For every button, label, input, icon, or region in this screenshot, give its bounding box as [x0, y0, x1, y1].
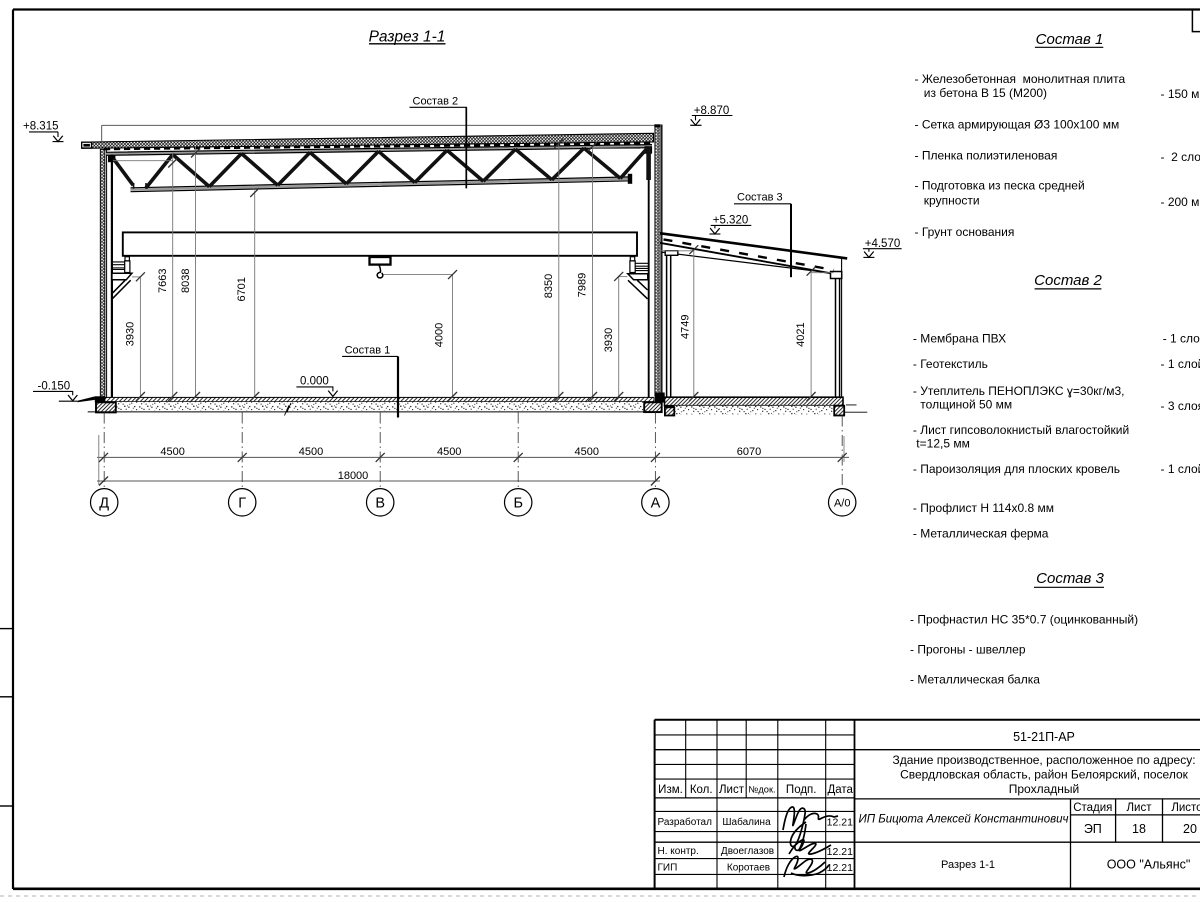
svg-text:4749: 4749 — [679, 314, 691, 338]
svg-text:Н. контр.: Н. контр. — [658, 846, 699, 857]
svg-text:Лист: Лист — [1127, 802, 1153, 814]
svg-text:4500: 4500 — [299, 446, 323, 458]
svg-text:- 1 слой: - 1 слой — [1161, 462, 1200, 476]
svg-text:7663: 7663 — [157, 268, 169, 292]
svg-text:4500: 4500 — [575, 446, 599, 458]
svg-text:- Профнастил НС 35*0.7 (оцинко: - Профнастил НС 35*0.7 (оцинкованный) — [910, 613, 1138, 627]
svg-text:- Профлист Н 114х0.8 мм: - Профлист Н 114х0.8 мм — [913, 501, 1054, 515]
svg-text:4500: 4500 — [160, 446, 184, 458]
svg-text:Дата: Дата — [827, 784, 853, 796]
svg-text:+5.320: +5.320 — [713, 214, 749, 226]
svg-text:Прохладный: Прохладный — [1009, 782, 1079, 796]
svg-text:- 1 слой: - 1 слой — [1161, 357, 1200, 371]
svg-text:А: А — [651, 496, 661, 512]
svg-text:51-21П-АР: 51-21П-АР — [1013, 730, 1075, 744]
svg-text:Состав 3: Состав 3 — [1036, 570, 1104, 587]
svg-text:4500: 4500 — [437, 446, 461, 458]
svg-text:8038: 8038 — [180, 268, 192, 292]
svg-text:- 1 слой: - 1 слой — [1163, 332, 1200, 346]
svg-text:Лист: Лист — [719, 784, 745, 796]
svg-text:Стадия: Стадия — [1073, 802, 1112, 814]
svg-text:Разрез 1-1: Разрез 1-1 — [369, 28, 446, 45]
svg-text:- 3 слоя: - 3 слоя — [1161, 399, 1200, 413]
svg-text:Двоеглазов: Двоеглазов — [721, 846, 774, 857]
svg-text:Разрез 1-1: Разрез 1-1 — [941, 859, 995, 871]
svg-text:3930: 3930 — [124, 322, 136, 346]
svg-text:6070: 6070 — [737, 446, 761, 458]
svg-text:+4.570: +4.570 — [865, 238, 901, 250]
svg-text:- 2 слоя: - 2 слоя — [1161, 150, 1200, 164]
svg-text:8350: 8350 — [543, 274, 555, 298]
svg-text:12.21: 12.21 — [827, 846, 853, 858]
svg-text:- Пароизоляция для плоских кро: - Пароизоляция для плоских кровель — [913, 462, 1120, 476]
svg-text:Коротаев: Коротаев — [727, 862, 770, 873]
svg-text:- Прогоны - швеллер: - Прогоны - швеллер — [910, 643, 1026, 657]
svg-text:- Утеплитель ПЕНОПЛЭКС ɣ=30кг/: - Утеплитель ПЕНОПЛЭКС ɣ=30кг/м3, — [913, 384, 1125, 398]
svg-text:t=12,5 мм: t=12,5 мм — [916, 437, 970, 451]
svg-text:4000: 4000 — [434, 323, 446, 347]
svg-text:Д: Д — [99, 496, 109, 512]
svg-text:12.21: 12.21 — [827, 862, 853, 874]
svg-text:- Мембрана ПВХ: - Мембрана ПВХ — [913, 332, 1006, 346]
svg-text:18000: 18000 — [338, 470, 369, 482]
svg-text:Подп.: Подп. — [786, 784, 817, 796]
svg-text:- Железобетонная монолитная п: - Железобетонная монолитная плита — [915, 72, 1126, 86]
svg-text:Состав 1: Состав 1 — [1036, 31, 1104, 48]
svg-text:Г: Г — [238, 496, 246, 512]
svg-text:- Грунт основания: - Грунт основания — [915, 225, 1015, 239]
svg-text:ИП Бицюта Алексей Константинов: ИП Бицюта Алексей Константинович — [859, 813, 1069, 825]
svg-text:Здание производственное, распо: Здание производственное, расположенное п… — [892, 753, 1195, 767]
svg-text:Свердловская область, район Бе: Свердловская область, район Белоярский, … — [900, 767, 1189, 781]
svg-text:+8.315: +8.315 — [23, 121, 59, 133]
svg-text:из бетона В 15 (М200): из бетона В 15 (М200) — [924, 86, 1047, 100]
svg-text:крупности: крупности — [924, 194, 980, 208]
svg-text:- Пленка полиэтиленовая: - Пленка полиэтиленовая — [915, 149, 1058, 163]
svg-text:- Сетка армирующая Ø3 100х100: - Сетка армирующая Ø3 100х100 мм — [915, 117, 1120, 131]
svg-text:- Лист гипсоволокнистый влагос: - Лист гипсоволокнистый влагостойкий — [913, 423, 1129, 437]
svg-text:7989: 7989 — [577, 273, 589, 297]
svg-text:12.21: 12.21 — [827, 817, 853, 829]
svg-text:В: В — [375, 496, 385, 512]
svg-text:Состав 1: Состав 1 — [345, 344, 391, 356]
svg-text:18: 18 — [1132, 822, 1146, 836]
svg-text:- Металлическая балка: - Металлическая балка — [910, 673, 1040, 687]
svg-text:3930: 3930 — [603, 328, 615, 352]
svg-text:- 150 мм: - 150 мм — [1161, 87, 1200, 101]
svg-text:- Геотекстиль: - Геотекстиль — [913, 357, 988, 371]
svg-text:0.000: 0.000 — [300, 376, 329, 388]
svg-text:Шабалина: Шабалина — [722, 816, 771, 828]
svg-text:Изм.: Изм. — [658, 784, 683, 796]
svg-text:№док.: №док. — [748, 784, 775, 794]
svg-text:Разработал: Разработал — [658, 816, 713, 828]
svg-text:- Металлическая ферма: - Металлическая ферма — [913, 526, 1049, 540]
svg-text:Состав 2: Состав 2 — [1034, 272, 1102, 289]
svg-text:Состав 3: Состав 3 — [737, 191, 783, 203]
svg-text:4021: 4021 — [795, 322, 807, 346]
svg-text:А/0: А/0 — [834, 498, 851, 510]
svg-text:- Подготовка из песка средней: - Подготовка из песка средней — [915, 179, 1085, 193]
svg-text:6701: 6701 — [236, 277, 248, 301]
svg-text:ЭП: ЭП — [1084, 822, 1102, 836]
svg-text:ООО "Альянс": ООО "Альянс" — [1107, 857, 1191, 871]
svg-text:- 200 мм: - 200 мм — [1161, 195, 1200, 209]
svg-text:Кол.: Кол. — [690, 784, 713, 796]
svg-text:ГИП: ГИП — [658, 862, 678, 873]
svg-text:Состав 2: Состав 2 — [413, 96, 459, 108]
svg-text:20: 20 — [1183, 822, 1197, 836]
svg-text:-0.150: -0.150 — [38, 380, 71, 392]
svg-text:Б: Б — [513, 496, 523, 512]
svg-text:Листов: Листов — [1171, 802, 1200, 814]
svg-text:толщиной 50 мм: толщиной 50 мм — [920, 398, 1012, 412]
